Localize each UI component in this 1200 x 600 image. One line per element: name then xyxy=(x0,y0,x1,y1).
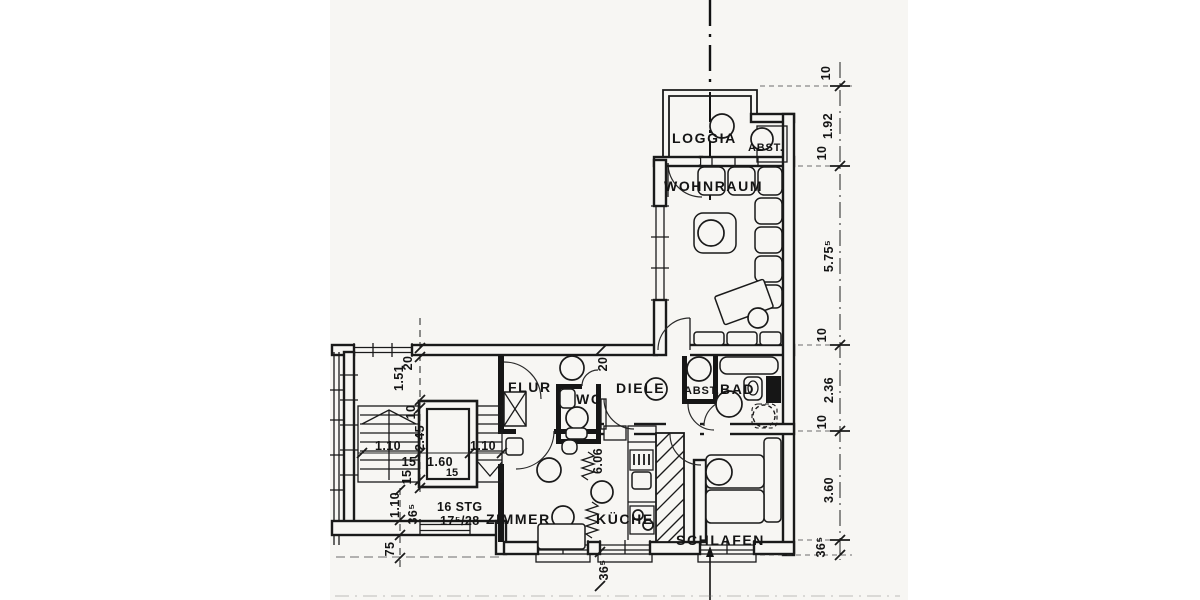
dim-mid-365: 36⁵ xyxy=(597,560,611,581)
dim-right-575: 5.75⁵ xyxy=(822,240,836,272)
floor-plan-svg: 10 1.92 10 5.75⁵ 10 2.36 10 3.60 36⁵ 20 … xyxy=(0,0,1200,600)
dim-right-192: 1.92 xyxy=(821,113,835,139)
dim-left-10: 10 xyxy=(404,405,418,420)
dim-right-365: 36⁵ xyxy=(814,537,828,558)
right-exterior-wall xyxy=(783,114,794,555)
dim-left-15b: 15 xyxy=(446,467,458,479)
room-loggia-label: LOGGIA xyxy=(672,130,737,146)
entrance-shaft xyxy=(504,392,526,426)
dim-right-10c: 10 xyxy=(815,328,829,343)
dim-left-151: 1.51 xyxy=(392,365,406,391)
dim-mid-606: 6.06 xyxy=(591,448,605,474)
room-kueche-label: KÜCHE xyxy=(596,511,654,527)
dim-mid-20: 20 xyxy=(596,357,610,372)
room-abst-bad-label: ABST. xyxy=(684,385,720,397)
room-schlafen-label: SCHLAFEN xyxy=(676,532,765,548)
dim-left-110v: 1.10 xyxy=(388,492,402,518)
dim-right-236: 2.36 xyxy=(822,377,836,403)
dim-left-365: 36⁵ xyxy=(406,504,420,525)
room-wc-label: WC xyxy=(576,391,603,407)
room-abst-loggia-label: ABST. xyxy=(748,142,784,154)
dim-left-15a: 15 xyxy=(402,455,417,469)
dim-right-10a: 10 xyxy=(819,66,833,81)
stairs-count-label: 16 STG xyxy=(437,500,482,514)
room-zimmer-label: ZIMMER xyxy=(486,511,551,527)
dim-left-75: 75 xyxy=(383,542,397,557)
hatched-shaft xyxy=(656,433,684,542)
floor-plan-page: 10 1.92 10 5.75⁵ 10 2.36 10 3.60 36⁵ 20 … xyxy=(0,0,1200,600)
dim-left-110l: 1.10 xyxy=(375,439,401,453)
dim-right-360: 3.60 xyxy=(822,477,836,503)
dim-left-15c: 15 xyxy=(400,470,414,485)
dim-right-10b: 10 xyxy=(815,146,829,161)
room-flur-label: FLUR xyxy=(508,379,552,395)
dim-right-10d: 10 xyxy=(815,415,829,430)
dim-left-110r: 1.10 xyxy=(470,439,496,453)
dim-left-245: 2.45 xyxy=(413,425,427,451)
room-wohnraum-label: WOHNRAUM xyxy=(664,178,763,194)
room-diele-label: DIELE xyxy=(616,380,665,396)
stairs-ratio-label: 17⁵/28 xyxy=(440,514,480,528)
room-bad-label: BAD xyxy=(720,381,755,397)
